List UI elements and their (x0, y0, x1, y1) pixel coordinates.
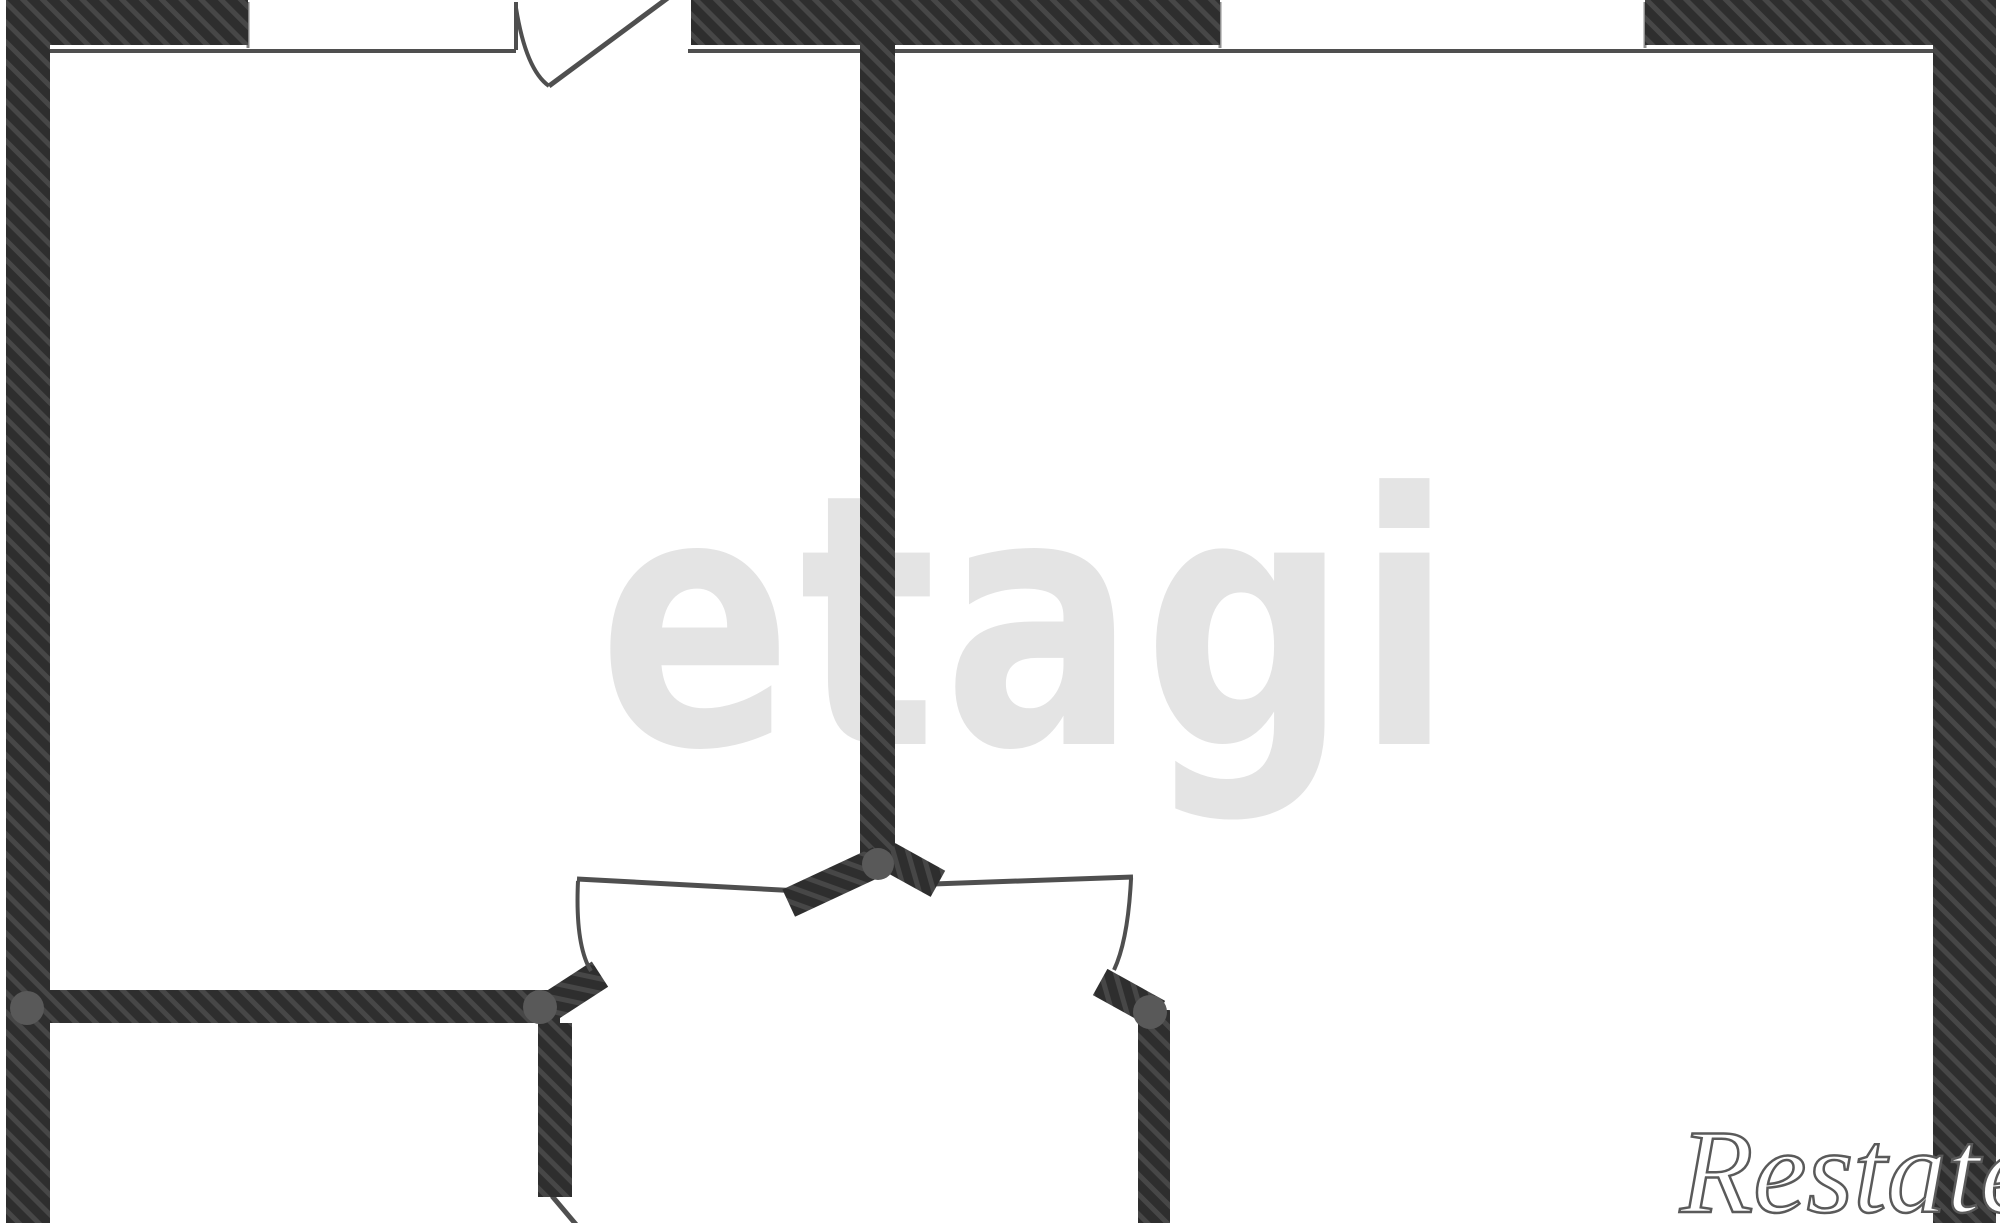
entry-door-leaf (549, 0, 684, 86)
walls-layer (6, 0, 1996, 1223)
hall-right-doorway-header (933, 877, 1133, 884)
top-wall-right-segment (1645, 0, 1996, 45)
hall-left-door-leaf (578, 881, 591, 971)
floor-plan (0, 0, 2000, 1223)
joint-dot-left-doorway (523, 990, 557, 1024)
hall-right-door-leaf (1114, 879, 1131, 970)
lower-left-door-leaf (552, 1196, 579, 1223)
interior-wall-vertical (860, 45, 895, 865)
door-swings-layer (516, 8, 1131, 971)
joint-dot-right-doorway (1133, 995, 1167, 1029)
lower-right-wall-vertical (1138, 1010, 1170, 1223)
restate-watermark: Restate (1680, 1112, 2000, 1223)
lower-left-wall-vertical (538, 1023, 572, 1197)
right-exterior-wall (1933, 0, 1996, 1223)
floor-plan-page: etagi Restate (0, 0, 2000, 1223)
interior-wall-left-horizontal (50, 990, 560, 1023)
top-wall-left-segment (6, 0, 248, 45)
left-exterior-wall (6, 0, 50, 1223)
thin-lines-layer (50, 0, 1933, 1223)
joint-dot-left-wall (10, 991, 44, 1025)
joint-dot-wall-junction (862, 848, 894, 880)
top-wall-middle-segment (691, 0, 1220, 45)
hall-left-doorway-header (577, 879, 800, 891)
entry-door-arc (516, 8, 549, 86)
